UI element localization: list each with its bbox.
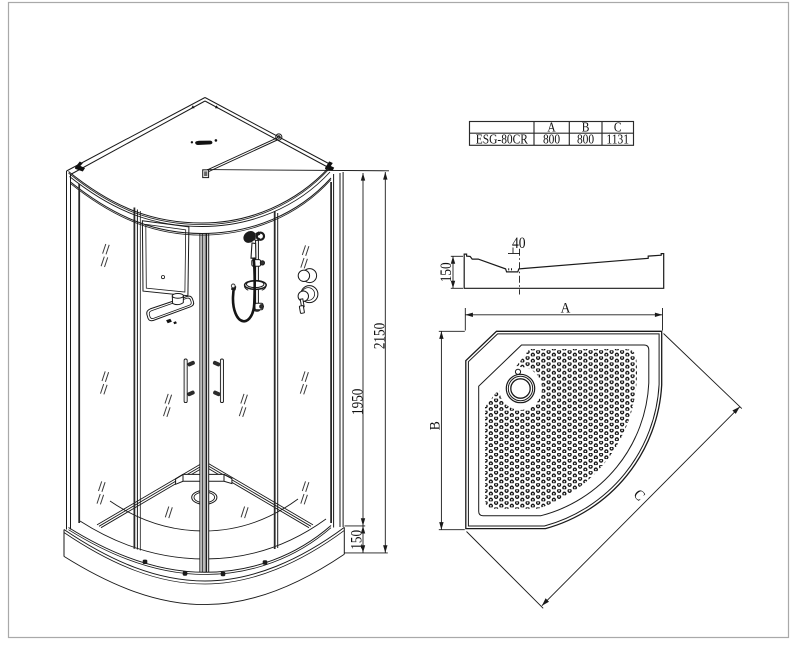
svg-text:40: 40 — [512, 235, 526, 252]
svg-text:800: 800 — [543, 132, 560, 147]
svg-text:800: 800 — [577, 132, 594, 147]
svg-text:ESG-80CR: ESG-80CR — [476, 132, 529, 147]
svg-text:B: B — [427, 421, 444, 430]
svg-text:1950: 1950 — [349, 389, 366, 415]
svg-text:A: A — [561, 300, 571, 317]
svg-text:150: 150 — [438, 262, 455, 282]
svg-text:150: 150 — [349, 530, 366, 550]
svg-text:1131: 1131 — [606, 132, 629, 147]
svg-text:2150: 2150 — [372, 323, 389, 349]
